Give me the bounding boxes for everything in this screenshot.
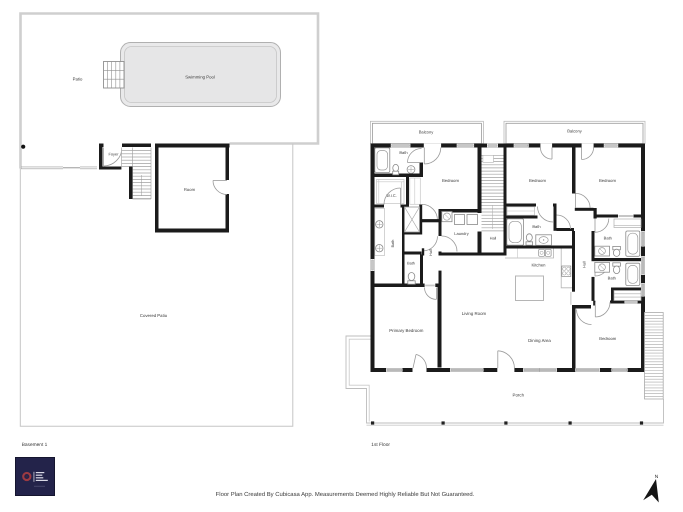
svg-text:Basement 1: Basement 1 — [22, 442, 48, 448]
svg-text:Balcony: Balcony — [567, 128, 583, 133]
svg-text:Porch: Porch — [513, 393, 525, 398]
svg-text:Bath: Bath — [604, 236, 612, 241]
svg-text:Covered Patio: Covered Patio — [140, 313, 168, 318]
svg-text:Balcony: Balcony — [419, 129, 435, 134]
svg-text:Bedroom: Bedroom — [529, 178, 547, 183]
svg-text:1st Floor: 1st Floor — [371, 442, 390, 448]
svg-text:N: N — [655, 474, 659, 480]
svg-text:Swimming Pool: Swimming Pool — [185, 75, 215, 80]
svg-text:Hall: Hall — [583, 261, 587, 268]
svg-text:Primary Bedroom: Primary Bedroom — [389, 328, 424, 333]
svg-text:Hall: Hall — [490, 237, 497, 241]
svg-text:Kitchen: Kitchen — [532, 262, 547, 267]
svg-text:Laundry: Laundry — [454, 231, 468, 236]
svg-text:Bath: Bath — [608, 275, 616, 280]
svg-text:Bath: Bath — [399, 150, 407, 155]
svg-text:Bath: Bath — [407, 262, 415, 266]
svg-text:Room: Room — [184, 187, 196, 192]
svg-text:Living Room: Living Room — [462, 311, 487, 316]
svg-text:Bedroom: Bedroom — [442, 178, 460, 183]
svg-text:Dining Area: Dining Area — [528, 338, 551, 343]
svg-text:Bath: Bath — [532, 224, 540, 229]
svg-text:Floor Plan Created By Cubicasa: Floor Plan Created By Cubicasa App. Meas… — [216, 491, 475, 498]
svg-text:Foyer: Foyer — [109, 152, 120, 157]
svg-text:Patio: Patio — [73, 77, 83, 82]
svg-text:Bedroom: Bedroom — [599, 178, 617, 183]
svg-text:Bath: Bath — [391, 240, 395, 248]
svg-text:Hall: Hall — [429, 249, 433, 256]
svg-text:Bedroom: Bedroom — [599, 336, 617, 341]
